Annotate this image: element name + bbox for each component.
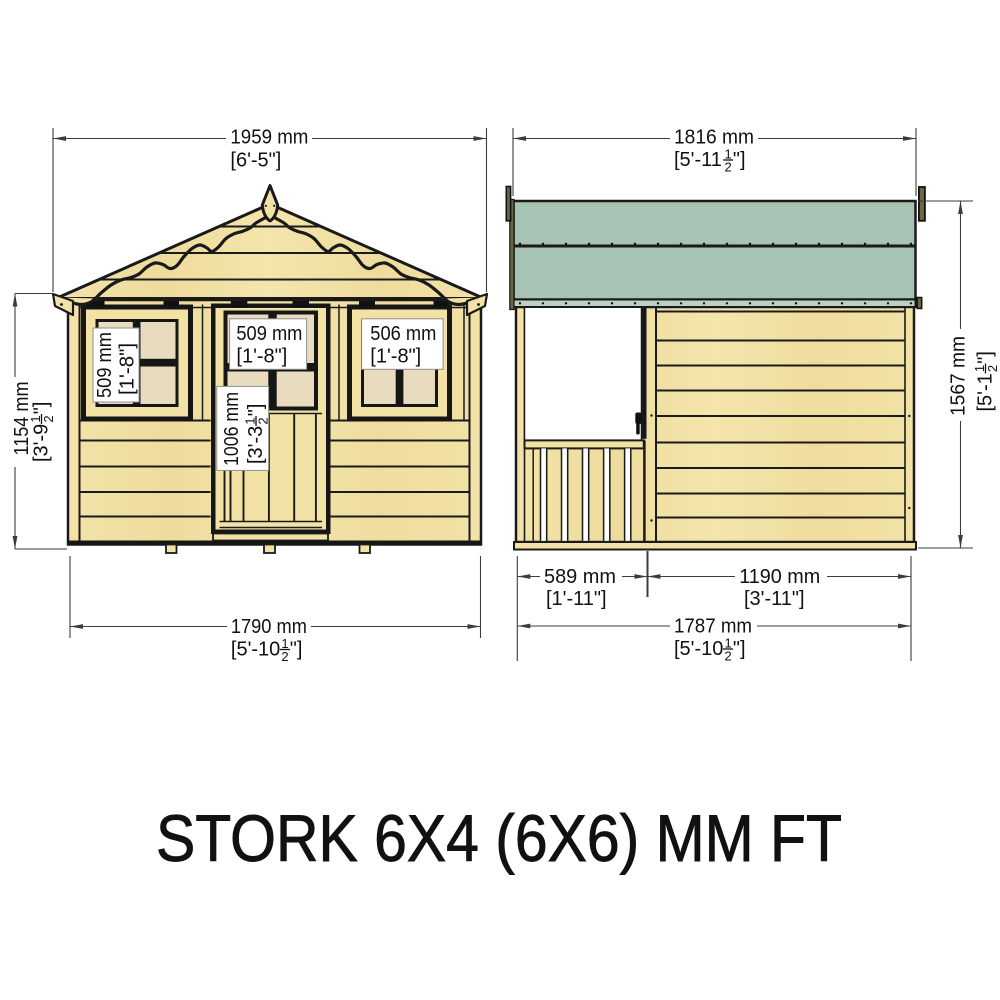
svg-text:[3'-11"]: [3'-11"] xyxy=(744,588,805,610)
svg-text:[6'-5"]: [6'-5"] xyxy=(230,150,281,172)
svg-text:1816 mm: 1816 mm xyxy=(674,127,754,149)
svg-text:"]: "] xyxy=(733,149,746,171)
svg-text:"]: "] xyxy=(975,351,997,364)
svg-text:1959 mm: 1959 mm xyxy=(230,127,308,149)
svg-text:1006 mm: 1006 mm xyxy=(221,392,243,466)
svg-text:"]: "] xyxy=(733,638,746,660)
svg-text:"]: "] xyxy=(290,639,303,661)
svg-text:[1'-8"]: [1'-8"] xyxy=(370,346,421,368)
svg-text:1567 mm: 1567 mm xyxy=(948,336,970,416)
svg-text:[3'-9: [3'-9 xyxy=(31,424,53,462)
svg-text:1787 mm: 1787 mm xyxy=(674,616,752,638)
svg-text:"]: "] xyxy=(31,402,53,415)
svg-text:"]: "] xyxy=(245,404,267,417)
svg-text:506 mm: 506 mm xyxy=(370,323,436,345)
svg-text:[5'-1: [5'-1 xyxy=(975,373,997,411)
svg-text:2: 2 xyxy=(985,365,1000,372)
svg-text:1790 mm: 1790 mm xyxy=(231,616,307,638)
svg-text:[5'-10: [5'-10 xyxy=(674,638,723,660)
svg-text:[1'-8"]: [1'-8"] xyxy=(236,346,287,368)
svg-text:2: 2 xyxy=(724,160,731,175)
svg-text:STORK 6X4 (6X6) MM FT: STORK 6X4 (6X6) MM FT xyxy=(156,801,842,875)
svg-text:2: 2 xyxy=(724,649,731,664)
svg-text:[3'-3: [3'-3 xyxy=(245,426,267,464)
svg-text:1190 mm: 1190 mm xyxy=(739,566,820,588)
svg-text:589 mm: 589 mm xyxy=(544,566,616,588)
svg-text:509 mm: 509 mm xyxy=(94,332,116,398)
svg-text:2: 2 xyxy=(41,415,56,422)
svg-text:[5'-11: [5'-11 xyxy=(674,149,722,171)
svg-text:[5'-10: [5'-10 xyxy=(231,639,280,661)
svg-text:2: 2 xyxy=(281,649,288,664)
svg-text:2: 2 xyxy=(256,417,271,424)
svg-text:509 mm: 509 mm xyxy=(236,323,302,345)
svg-text:[1'-11"]: [1'-11"] xyxy=(546,588,607,610)
svg-text:[1'-8"]: [1'-8"] xyxy=(117,343,139,395)
